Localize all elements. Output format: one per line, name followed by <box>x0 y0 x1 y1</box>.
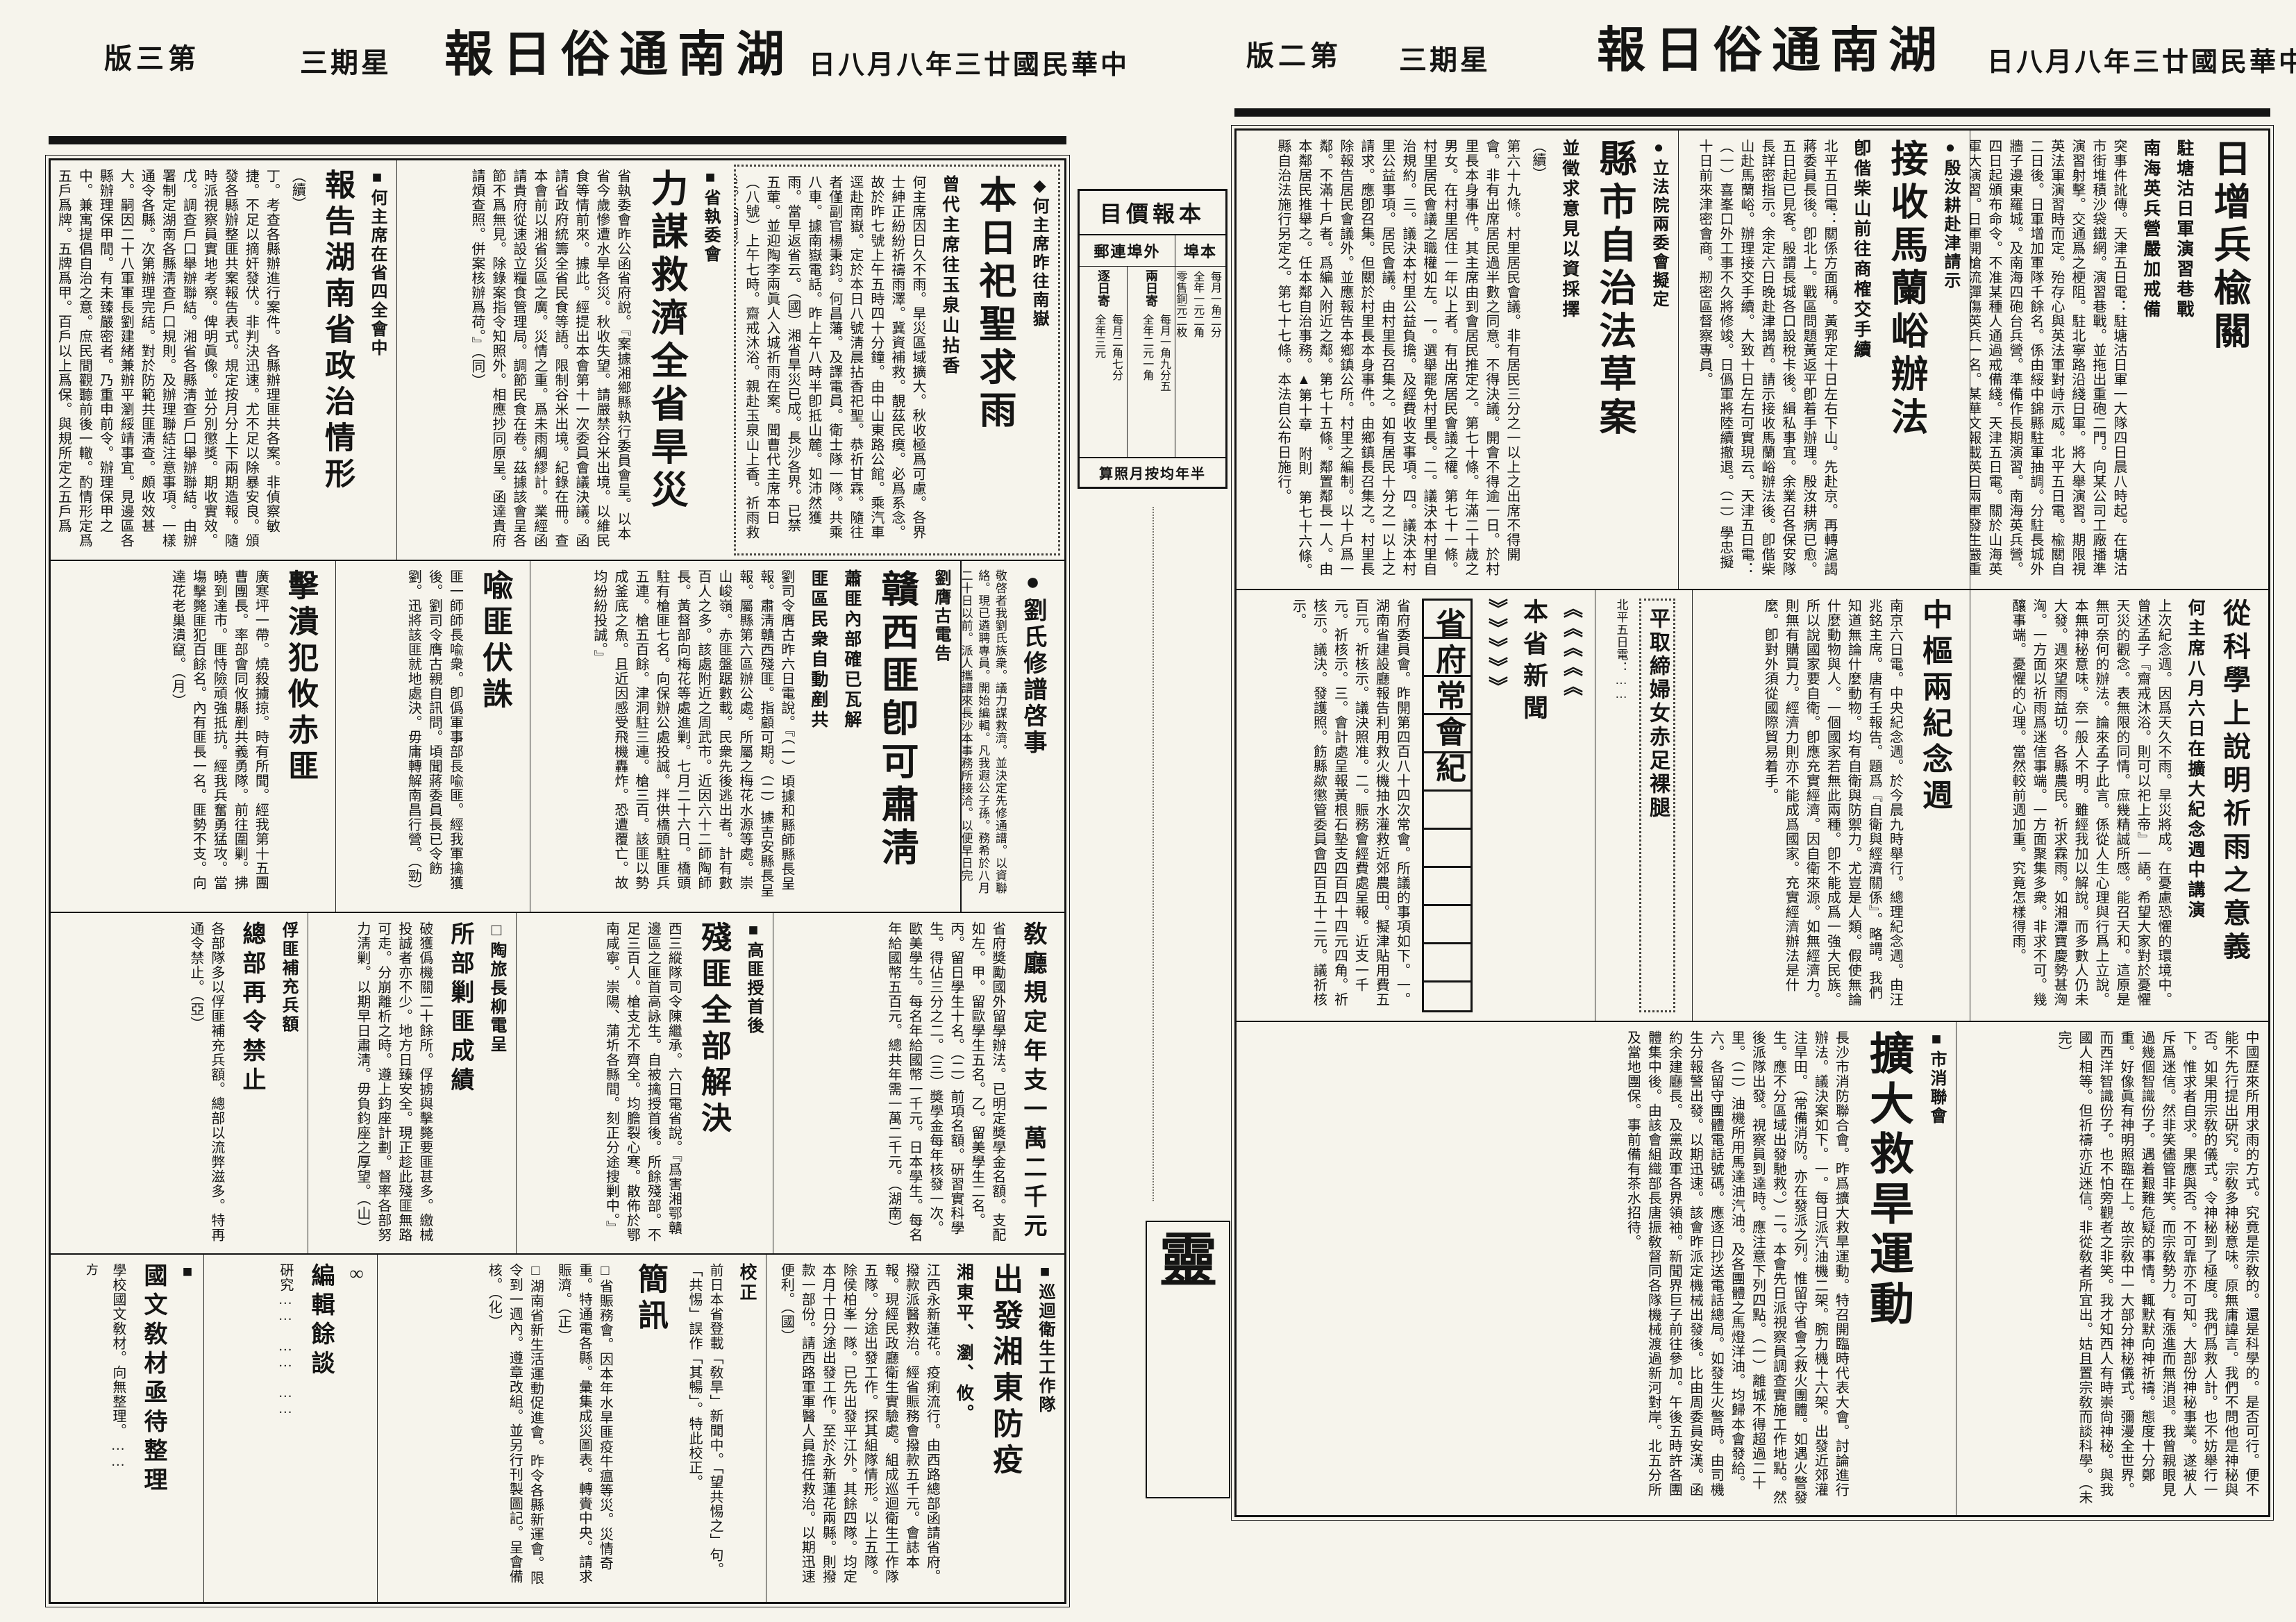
you-headline: 擊潰犯攸赤匪 <box>282 569 317 903</box>
memorial-headline: 中樞兩紀念週 <box>1916 599 1952 1012</box>
memorial-body: 南京六日電。中央紀念週。於今晨九時舉行。總理紀念週。由汪兆銘主席。唐有壬報告。題… <box>1759 599 1905 1012</box>
price-box-body: 埠本 每月一角二分 全年一元二角 零售銅元二枚 郵連埠外 兩日寄 每月一角九分五… <box>1080 235 1225 457</box>
suppression-headline: 所部剿匪成績 <box>446 921 474 1245</box>
page2-weekday: 三期星 <box>1399 37 1491 78</box>
suppression-kicker: □陶旅長柳電呈 <box>485 921 509 1245</box>
article-central-memorial-week: 中樞兩紀念週 南京六日電。中央紀念週。於今晨九時舉行。總理紀念週。由汪兆銘主席。… <box>1692 590 1970 1021</box>
price-subcol-twoday: 兩日寄 每月一角九分五 全年二元一角 <box>1127 267 1175 457</box>
article-you-bandits-routed: 擊潰犯攸赤匪 廣寒坪一帶。燒殺擄掠。時有所聞。經我第十五團曹團長。率部會同攸縣剷… <box>51 561 335 912</box>
page2-number: 版二第 <box>1246 33 1342 74</box>
barelegs-body: 北平五日電：…… <box>1612 599 1629 1012</box>
remnants-body: 西三縱隊司令陳繼承。六日電省說。『爲害湘鄂贛邊區之匪首高詠生。自被擒授首後。所餘… <box>601 921 684 1245</box>
ling-ad-big-character: 靈 <box>1146 1229 1225 1490</box>
article-epidemic-prevention: ■巡迴衛生工作隊 出發湘東防疫 湘東平、瀏、攸。 江西永新蓮花。疫痢流行。由西路… <box>766 1255 1064 1602</box>
editor-headline: 編輯餘談 <box>307 1263 334 1594</box>
price-subcol-daily: 逐日寄 每月二角七分 全年三元 <box>1080 267 1127 457</box>
suppression-body: 破獲僞機關二十餘所。俘掳與擊斃要匪甚多。繳械投誠者亦不少。地方日臻安全。現正趁此… <box>352 921 435 1245</box>
page3-row-2: ●劉氏修譜啓事 敬啓者我劉氏族衆。議力謀救濟。並決定先修通譜。以資聯絡。現已遴聘… <box>51 561 1064 913</box>
page-gutter-divider <box>1153 507 1154 1201</box>
page2-date: 日八月八年三廿國民華中 <box>1987 40 2296 78</box>
genealogy-headline: ●劉氏修譜啓事 <box>1019 569 1046 903</box>
page3-date: 日八月八年三廿國民華中 <box>809 43 1130 81</box>
rainprayer-continuation-body: 中國歷來所用求雨的方式。究竟是宗敎的。還是科學的。是否可行。便不能不先行提出硏究… <box>2053 1030 2261 1507</box>
law-body: 第六十九條。村里居民會議。非有居民三分之一以上之出席不得開會。非有出席居民過半數… <box>1273 139 1523 580</box>
relief-headline: 力謀救濟全省旱災 <box>644 169 687 551</box>
province-news-title: 本省新聞 <box>1516 599 1552 1012</box>
page3-weekday: 三期星 <box>300 40 392 81</box>
jiangxi-headline: 贛西匪卽可肅淸 <box>875 569 918 903</box>
sacrifice-headline: 本日祀聖求雨 <box>973 175 1016 545</box>
page3-number: 版三第 <box>104 36 200 76</box>
rainprayer-headline: 從科學上說明祈雨之意義 <box>2218 599 2250 1012</box>
sacrifice-kicker: ◆何主席昨往南嶽 <box>1027 175 1051 545</box>
article-drought-relief: ■省執委會 力謀救濟全省旱災 省執委會昨公函省府說。『案據湘鄉縣執行委員會呈。以… <box>396 160 730 560</box>
price-daily-lines: 每月二角七分 全年三元 <box>1080 310 1127 457</box>
relief-body: 省執委會昨公函省府說。『案據湘鄉縣執行委員會呈。以本省今歲慘遭水旱各災。秋收失望… <box>467 169 633 551</box>
price-local-header: 埠本 <box>1175 235 1225 267</box>
price-daily-monthly: 每月二角七分 <box>1107 314 1124 453</box>
japan-subhead-2: 南海英兵營嚴加戒備 <box>2138 139 2163 580</box>
article-autonomy-law-draft: ●立法院兩委會擬定 縣市自治法草案 並徵求意見以資採擇 （續） 第六十九條。村里… <box>1237 131 1678 589</box>
page2-frame: 日增兵楡關 駐塘沽日軍演習巷戰 南海英兵營嚴加戒備 突事件訛傳。天津五日電：駐塘… <box>1234 128 2270 1517</box>
article-textbook-reform: ■ 國文敎材亟待整理 學校國文敎材。向無整理。…… 方 <box>51 1255 203 1602</box>
provcouncil-body: 省府委員會。昨開第四百八十四次常會。所議的事項如下。一。湖南省建設廳報告利用救火… <box>1287 599 1412 1012</box>
article-yin-ruqing-tianjin: ●殷汝耕赴津請示 接收馬蘭峪辦法 卽偕柴山前往商榷交手續 北平五日電：關係方面稱… <box>1678 131 1970 589</box>
article-japan-troops-yuguan: 日增兵楡關 駐塘沽日軍演習巷戰 南海英兵營嚴加戒備 突事件訛傳。天津五日電：駐塘… <box>1970 131 2268 589</box>
province-news-ornament-left: ︾︾︾︾︾ <box>1482 599 1510 1012</box>
page3-frame: ◆何主席昨往南嶽 本日祀聖求雨 曾代主席往玉泉山拈香 何主席因日久不雨。旱災區域… <box>49 158 1066 1604</box>
subscription-price-box: 目價報本 埠本 每月一角二分 全年一元二角 零售銅元二枚 郵連埠外 兩日寄 每月… <box>1078 189 1227 489</box>
province-news-ornament-right: ︽︽︽︽︽ <box>1557 599 1585 1012</box>
drought-body: 長沙市消防聯合會。昨爲擴大救旱運動。特召開臨時代表大會。討論進行辦法。議決案如下… <box>1622 1030 1851 1507</box>
article-drought-campaign: ■市消聯會 擴大救旱運動 長沙市消防聯合會。昨爲擴大救旱運動。特召開臨時代表大會… <box>1359 1022 1956 1515</box>
epidemic-body: 江西永新蓮花。疫痢流行。由西路總部函請省府。撥款派醫救治。經省賑務會撥款五千元。… <box>776 1263 942 1594</box>
article-political-report: ■何主席在省四全會中 報告湖南省政治情形 （續） 丁。考查各縣辦進行案件。各縣辦… <box>51 160 396 560</box>
sacrifice-body: 何主席因日久不雨。旱災區域擴大。秋收極爲可慮。各界士紳正紛紛祈禱雨澤。冀資補救。… <box>734 175 928 545</box>
article-bare-legs-ban: 平取締婦女赤足裸腿 北平五日電：…… <box>1595 590 1692 1021</box>
epidemic-subhead: 湘東平、瀏、攸。 <box>950 1263 975 1594</box>
ban-headline: 總部再令禁止 <box>238 921 265 1245</box>
briefs-correction: 前日本省登載「敎旱」新聞中。「望共惕之」句。「共惕」誤作「其暢」。特此校正。 <box>684 1263 726 1594</box>
rainprayer-subhead: 何主席八月六日在擴大紀念週中講演 <box>2182 599 2207 1012</box>
textbook-body: 學校國文敎材。向無整理。…… <box>108 1263 128 1594</box>
law-headline: 縣市自治法草案 <box>1593 139 1636 580</box>
yu-headline: 喩匪伏誅 <box>476 569 512 903</box>
article-yu-bandit-executed: 喩匪伏誅 匪一師師長喩衆。卽僞軍事部長喩匪。經我軍擒獲後。劉司令膺古親自訊問。頃… <box>335 561 530 912</box>
law-subhead: 並徵求意見以資採擇 <box>1557 139 1582 580</box>
editor-ornament: ∞ <box>345 1263 367 1594</box>
report-headline: 報告湖南省政治情形 <box>319 169 354 551</box>
textbook-headline: 國文敎材亟待整理 <box>140 1263 167 1594</box>
page2-row-3: 中國歷來所用求雨的方式。究竟是宗敎的。還是科學的。是否可行。便不能不先行提出硏究… <box>1237 1022 2268 1515</box>
ban-body: 各部隊多以俘匪補充兵額。總部以流弊滋多。特再通令禁止。（亞） <box>185 921 227 1245</box>
price-twoday-lines: 每月一角九分五 全年二元一角 <box>1128 310 1175 457</box>
barelegs-headline: 平取締婦女赤足裸腿 <box>1639 599 1676 1012</box>
article-editor-notes: ∞ 編輯餘談 硏究…… …… …… <box>203 1255 377 1602</box>
article-hq-ban: 俘匪補充兵額 總部再令禁止 各部隊多以俘匪補充兵額。總部以流弊滋多。特再通令禁止… <box>51 913 308 1253</box>
editor-body: 硏究…… …… …… <box>275 1263 296 1594</box>
briefs-correction-head: 校正 <box>734 1263 759 1594</box>
japan-subhead-1: 駐塘沽日軍演習巷戰 <box>2171 139 2196 580</box>
article-provincial-council: ︽︽︽︽︽ 本省新聞 ︾︾︾︾︾ 省府常會紀 省府委員會。昨開第四百八十四次常會… <box>1237 590 1595 1021</box>
remnants-headline: 殘匪全部解決 <box>695 921 730 1245</box>
drought-kicker: ■市消聯會 <box>1925 1030 1949 1507</box>
page2-masthead-title: 報日俗通南湖 <box>1597 11 1947 81</box>
japan-body: 突事件訛傳。天津五日電：駐塘沽日軍一大隊四日晨八時起。在塘沽市街堆積沙袋鐵網。演… <box>1970 139 2129 580</box>
page3-row-3: 敎廳規定年支一萬二千元 省府奬勵國外留學辦法。已明定奬學金名額。支配如左。甲。留… <box>51 913 1064 1255</box>
briefs-item-1: □省賑務會。因本年水旱匪疫牛瘟等災。災情奇重。特通電各縣。彙集成災圖表。轉賫中央… <box>553 1263 615 1594</box>
article-rain-prayer-science: 從科學上說明祈雨之意義 何主席八月六日在擴大紀念週中講演 上次紀念週。因爲天久不… <box>1970 590 2268 1021</box>
page2-row-1: 日增兵楡關 駐塘沽日軍演習巷戰 南海英兵營嚴加戒備 突事件訛傳。天津五日電：駐塘… <box>1237 131 2268 590</box>
ling-advertisement: 靈 熱季 更誦 長沙黃南街 印刷發行 <box>1146 1221 1230 1498</box>
price-twoday-header: 兩日寄 <box>1139 267 1163 310</box>
price-local-monthly: 每月一角二分 <box>1205 271 1223 453</box>
price-local-yearly: 全年一元二角 <box>1188 271 1205 453</box>
page3-masthead-title: 報日俗通南湖 <box>444 15 794 85</box>
scholarship-body: 省府奬勵國外留學辦法。已明定奬學金名額。支配如左。甲。留歐學生五名。乙。留美學生… <box>883 921 1008 1245</box>
article-briefs: 校正 前日本省登載「敎旱」新聞中。「望共惕之」句。「共惕」誤作「其暢」。特此校正… <box>377 1255 766 1602</box>
jiangxi-kicker: 劉膺古電告 <box>929 569 953 903</box>
article-remnant-bandits: ■高匪授首後 殘匪全部解決 西三縱隊司令陳繼承。六日電省說。『爲害湘鄂贛邊區之匪… <box>516 913 773 1253</box>
article-jiangxi-bandits: 劉膺古電告 贛西匪卽可肅淸 蕭匪內部確已瓦解 匪區民衆自動剷共 劉司令膺古昨六日… <box>530 561 960 912</box>
you-body: 廣寒坪一帶。燒殺擄掠。時有所聞。經我第十五團曹團長。率部會同攸縣剷共義勇隊。前往… <box>167 569 271 903</box>
article-rain-prayer-continuation: 中國歷來所用求雨的方式。究竟是宗敎的。還是科學的。是否可行。便不能不先行提出硏究… <box>1956 1022 2268 1515</box>
price-twoday-yearly: 全年二元一角 <box>1137 314 1155 453</box>
jiangxi-body: 劉司令膺古昨六日電說。『（一）頃據和縣師縣長呈報。肅淸贛西殘匪。指顧可期。（二）… <box>589 569 797 903</box>
textbook-kicker: ■ <box>178 1263 196 1594</box>
page3-row-1: ◆何主席昨往南嶽 本日祀聖求雨 曾代主席往玉泉山拈香 何主席因日久不雨。旱災區域… <box>51 160 1064 561</box>
article-suppression-results: □陶旅長柳電呈 所部剿匪成績 破獲僞機關二十餘所。俘掳與擊斃要匪甚多。繳械投誠者… <box>308 913 516 1253</box>
report-kicker: ■何主席在省四全會中 <box>365 169 389 551</box>
page2-row-2: 從科學上說明祈雨之意義 何主席八月六日在擴大紀念週中講演 上次紀念週。因爲天久不… <box>1237 590 2268 1022</box>
jiangxi-subhead-1: 蕭匪內部確已瓦解 <box>839 569 864 903</box>
provcouncil-headline: 省府常會紀 <box>1422 599 1473 1012</box>
report-continued-marker: （續） <box>287 169 308 551</box>
remnants-kicker: ■高匪授首後 <box>741 921 766 1245</box>
yu-body: 匪一師師長喩衆。卽僞軍事部長喩匪。經我軍擒獲後。劉司令膺古親自訊問。頃聞蔣委員長… <box>403 569 465 903</box>
newspaper-scan: 版三第 三期星 報日俗通南湖 日八月八年三廿國民華中 版二第 三期星 報日俗通南… <box>0 0 2296 1622</box>
epidemic-kicker: ■巡迴衛生工作隊 <box>1033 1263 1057 1594</box>
briefs-item-2: □湖南省新生活運動促進會。昨令各縣新運會。限令到一週內。遵章改組。並另行刊製圖記… <box>483 1263 546 1594</box>
ban-kicker: 俘匪補充兵額 <box>276 921 301 1245</box>
article-sacrifice-rain-prayer: ◆何主席昨往南嶽 本日祀聖求雨 曾代主席往玉泉山拈香 何主席因日久不雨。旱災區域… <box>734 165 1060 555</box>
textbook-signature: 方 <box>83 1263 101 1594</box>
sacrifice-subhead: 曾代主席往玉泉山拈香 <box>937 175 962 545</box>
price-daily-header: 逐日寄 <box>1091 267 1115 310</box>
law-kicker: ●立法院兩委會擬定 <box>1647 139 1671 580</box>
yin-headline: 接收馬蘭峪辦法 <box>1884 139 1927 580</box>
drought-headline: 擴大救旱運動 <box>1862 1030 1913 1507</box>
jiangxi-subhead-2: 匪區民衆自動剷共 <box>805 569 830 903</box>
price-outoftown-header: 郵連埠外 <box>1080 235 1175 267</box>
scholarship-headline: 敎廳規定年支一萬二千元 <box>1019 921 1046 1245</box>
price-col-outoftown: 郵連埠外 兩日寄 每月一角九分五 全年二元一角 逐日寄 每月二角七分 全年三元 <box>1080 235 1175 457</box>
page2-masthead-rule <box>1234 108 2270 117</box>
relief-kicker: ■省執委會 <box>698 169 723 551</box>
price-twoday-monthly: 每月一角九分五 <box>1155 314 1172 453</box>
report-body: 丁。考查各縣辦進行案件。各縣辦理匪共各案。非偵察敏捷。不足以摘奸發伏。非判決迅速… <box>51 169 282 551</box>
price-box-title: 目價報本 <box>1080 191 1225 235</box>
price-col-local: 埠本 每月一角二分 全年一元二角 零售銅元二枚 <box>1175 235 1225 457</box>
article-genealogy-notice: ●劉氏修譜啓事 敬啓者我劉氏族衆。議力謀救濟。並決定先修通譜。以資聯絡。現已遴聘… <box>960 561 1064 912</box>
yin-body: 北平五日電：關係方面稱。黃郛定十日左右下山。先赴京。再轉滬謁蔣委員長後。卽北上。… <box>1694 139 1840 580</box>
price-local-single: 零售銅元二枚 <box>1171 271 1189 453</box>
genealogy-body: 敬啓者我劉氏族衆。議力謀救濟。並決定先修通譜。以資聯絡。現已遴聘專員。開始編輯。… <box>960 569 1008 903</box>
rainprayer-body: 上次紀念週。因爲天久不雨。旱災將成。在憂慮恐懼的環境中。曾述孟子『齋戒沐浴。則可… <box>2007 599 2174 1012</box>
price-local-lines: 每月一角二分 全年一元二角 零售銅元二枚 <box>1175 267 1225 457</box>
law-continued-marker: （續） <box>1528 139 1548 580</box>
japan-headline: 日增兵楡關 <box>2207 139 2250 580</box>
price-daily-yearly: 全年三元 <box>1089 314 1107 453</box>
yin-kicker: ●殷汝耕赴津請示 <box>1938 139 1963 580</box>
epidemic-headline: 出發湘東防疫 <box>987 1263 1022 1594</box>
page3-masthead-rule <box>49 136 1066 144</box>
yin-subhead: 卽偕柴山前往商榷交手續 <box>1848 139 1873 580</box>
page3-row-4: ■巡迴衛生工作隊 出發湘東防疫 湘東平、瀏、攸。 江西永新蓮花。疫痢流行。由西路… <box>51 1255 1064 1602</box>
briefs-headline: 簡訊 <box>632 1263 667 1594</box>
article-scholarship-budget: 敎廳規定年支一萬二千元 省府奬勵國外留學辦法。已明定奬學金名額。支配如左。甲。留… <box>773 913 1064 1253</box>
price-box-footer: 算照月按均年半 <box>1080 457 1225 487</box>
